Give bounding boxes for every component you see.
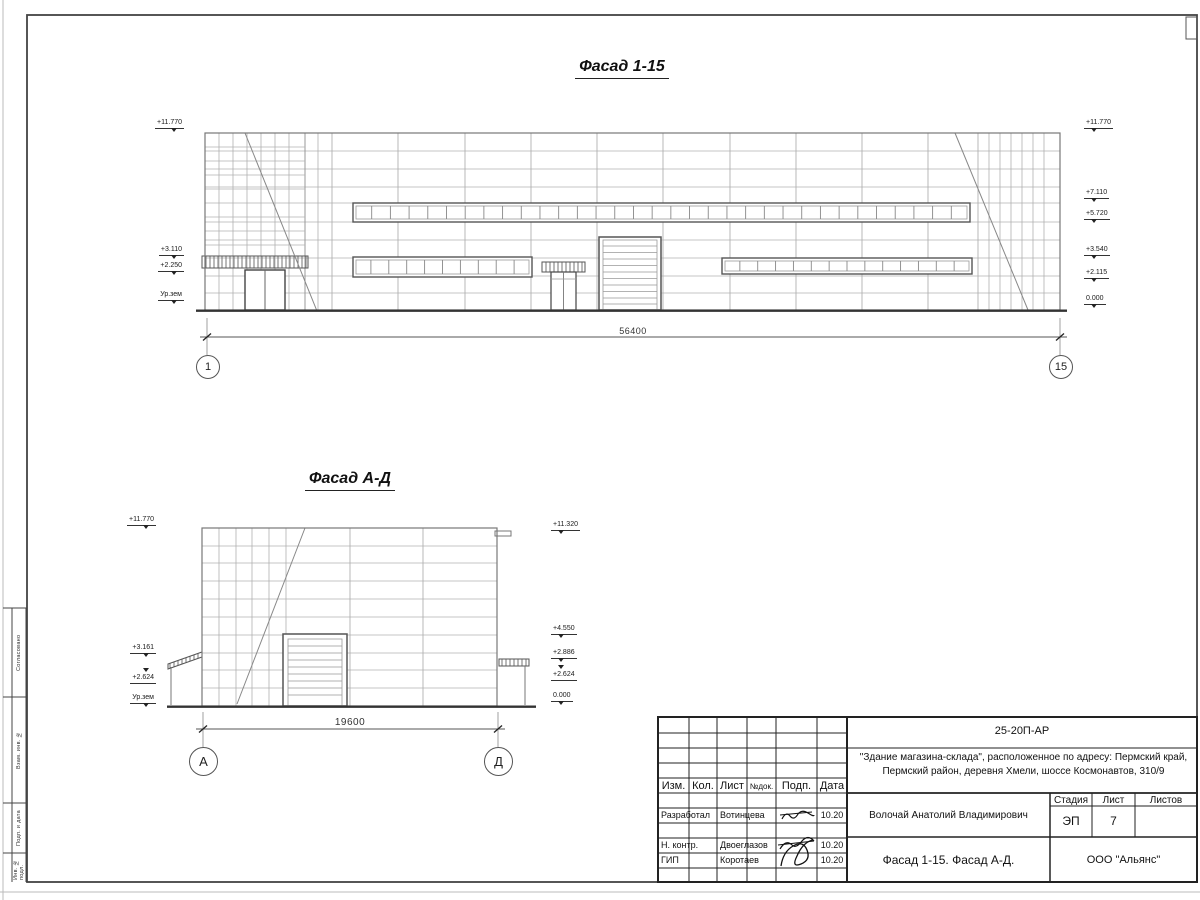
drawing-sheet: Фасад 1-15 Фасад А-Д 56400 19600 1 15 А … [0,0,1200,900]
row-role: Разработал [661,810,718,821]
project-address-line1: "Здание магазина-склада", расположенное … [850,752,1197,764]
company-name: ООО "Альянс" [1050,854,1197,867]
level-mark: +2.624 [110,674,156,684]
level-mark-flag [558,530,564,534]
level-mark: 0.000 [551,692,597,702]
sheets-label: Листов [1135,795,1197,807]
side-column-label: Подп. и дата [12,805,26,851]
facade2-dimension-label: 19600 [320,717,380,728]
level-mark: +11.320 [551,521,597,531]
level-mark-flag [1091,304,1097,308]
level-mark-flag [558,634,564,638]
level-mark-flag [143,703,149,707]
sheet-label: Лист [1092,795,1135,807]
row-role: ГИП [661,855,718,866]
level-mark-flag [1091,278,1097,282]
level-mark-flag [143,525,149,529]
level-mark: +11.770 [138,119,184,129]
level-mark: +11.770 [110,516,156,526]
level-mark: +3.161 [110,644,156,654]
facade2-title: Фасад А-Д [288,470,412,491]
level-mark-flag [558,701,564,705]
level-mark-flag [1091,255,1097,259]
level-mark-value: +11.770 [155,119,184,129]
level-mark-value: +2.624 [551,671,577,681]
col-data: Дата [817,780,847,793]
facade1-dimension-label: 56400 [603,326,663,336]
side-column-label: Взам. инв. № [12,699,26,801]
level-mark-flag [171,271,177,275]
level-mark-flag [1091,128,1097,132]
level-mark: +7.110 [1084,189,1130,199]
level-mark-value: +11.770 [127,516,156,526]
level-mark: +2.115 [1084,269,1130,279]
row-date: 10.20 [817,810,847,821]
level-mark: +11.770 [1084,119,1130,129]
level-mark-flag [143,668,149,672]
project-address-line2: Пермский район, деревня Хмели, шоссе Кос… [850,766,1197,778]
axis-bubble-d: Д [484,747,513,776]
level-mark: 0.000 [1084,295,1130,305]
level-mark-flag [1091,219,1097,223]
level-mark-flag [558,665,564,669]
row-role: Н. контр. [661,840,718,851]
level-mark: +5.720 [1084,210,1130,220]
axis-bubble-1: 1 [196,355,220,379]
side-column-label: Согласовано [12,610,26,695]
col-kol: Кол. [689,780,717,793]
side-column-label: Инв. № подл. [12,855,26,880]
col-podp: Подп. [776,780,817,793]
level-mark-flag [1091,198,1097,202]
level-mark-value: +2.624 [130,674,156,684]
facade1-title: Фасад 1-15 [560,58,684,79]
level-mark-flag [143,653,149,657]
chief-name: Волочай Анатолий Владимирович [847,810,1050,822]
level-mark-value: +11.320 [551,521,580,531]
level-mark: +3.540 [1084,246,1130,256]
row-name: Коротаев [720,855,778,866]
level-mark: +2.250 [138,262,184,272]
document-code: 25-20П-АР [847,725,1197,738]
level-mark-flag [171,300,177,304]
level-mark: Ур.зем [110,694,156,704]
drawing-title: Фасад 1-15. Фасад А-Д. [847,853,1050,867]
level-mark: +3.110 [138,246,184,256]
level-mark: Ур.зем [138,291,184,301]
level-mark-flag [171,128,177,132]
row-date: 10.20 [817,855,847,866]
sheet-value: 7 [1092,814,1135,828]
axis-bubble-15: 15 [1049,355,1073,379]
row-name: Двоеглазов [720,840,778,851]
level-mark: +4.550 [551,625,597,635]
stage-value: ЭП [1050,814,1092,828]
level-mark: +2.624 [551,671,597,681]
level-mark-value: +11.770 [1084,119,1113,129]
axis-bubble-a: А [189,747,218,776]
stage-label: Стадия [1050,795,1092,807]
level-mark: +2.886 [551,649,597,659]
col-list: Лист [717,780,747,793]
level-mark-flag [558,658,564,662]
row-date: 10.20 [817,840,847,851]
linework-layer [0,0,1200,900]
col-ndok: №док. [747,782,776,792]
row-name: Вотинцева [720,810,776,821]
col-izm: Изм. [658,780,689,793]
level-mark-flag [171,255,177,259]
